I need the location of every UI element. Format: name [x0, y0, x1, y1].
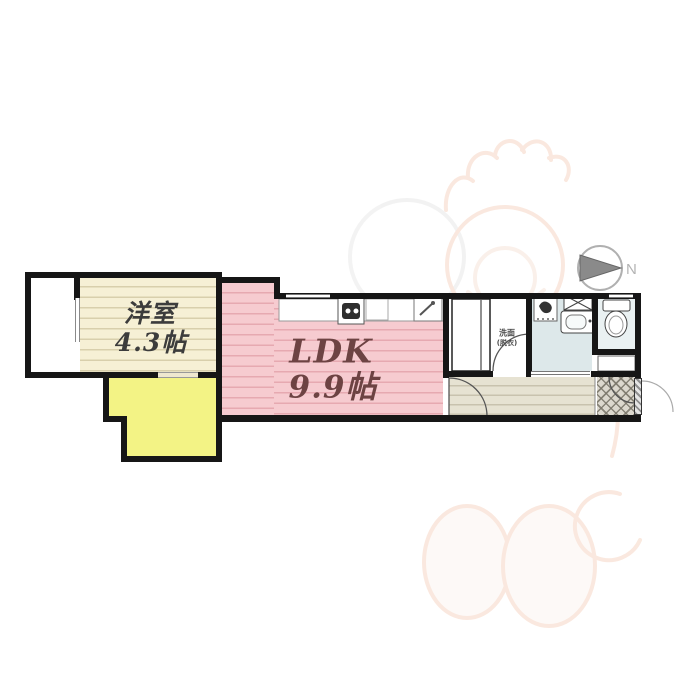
- compass-circle: [578, 246, 622, 290]
- wall: [526, 293, 532, 377]
- mascot-foot-icon: [424, 506, 510, 618]
- wall: [25, 272, 31, 378]
- ldk-room: [222, 283, 274, 415]
- washroom-note: (脱衣): [497, 338, 517, 348]
- wall: [216, 415, 641, 422]
- window-icon: [158, 372, 198, 378]
- window-icon: [286, 294, 330, 298]
- wall: [25, 272, 222, 278]
- front-door-swing-arc: [642, 381, 673, 412]
- wall: [635, 293, 641, 379]
- hallway: [449, 377, 595, 415]
- compass-needle-icon: [580, 255, 621, 281]
- mascot-tail-icon: [575, 492, 640, 560]
- toilet-room: [598, 299, 635, 349]
- floorplan-image: 洋室 4.3帖 LDK 9.9帖 洗面 (脱衣) N: [0, 0, 700, 700]
- wall: [592, 293, 598, 355]
- storage-box: [598, 355, 635, 371]
- bathroom: [532, 299, 592, 371]
- sliding-door-icon: [531, 371, 590, 377]
- mascot-curls-icon: [446, 141, 569, 210]
- western-room-size: 4.3帖: [115, 323, 188, 359]
- wall: [103, 372, 109, 422]
- mascot-foot-icon: [503, 506, 595, 626]
- wall: [443, 371, 493, 377]
- wall: [121, 456, 222, 462]
- wall: [591, 371, 641, 377]
- front-door-icon: [634, 378, 642, 415]
- wall: [216, 277, 280, 283]
- entrance-genkan: [597, 377, 635, 415]
- balcony-area: [31, 278, 74, 373]
- wall: [216, 272, 222, 462]
- window-icon: [609, 294, 633, 298]
- wall: [74, 272, 80, 300]
- ldk-size: 9.9帖: [289, 362, 378, 407]
- compass-north-label: N: [626, 261, 637, 278]
- washroom-label: 洗面: [499, 328, 515, 339]
- window-icon: [75, 298, 80, 342]
- wall: [443, 293, 449, 378]
- wall: [25, 372, 160, 378]
- wall: [592, 349, 641, 355]
